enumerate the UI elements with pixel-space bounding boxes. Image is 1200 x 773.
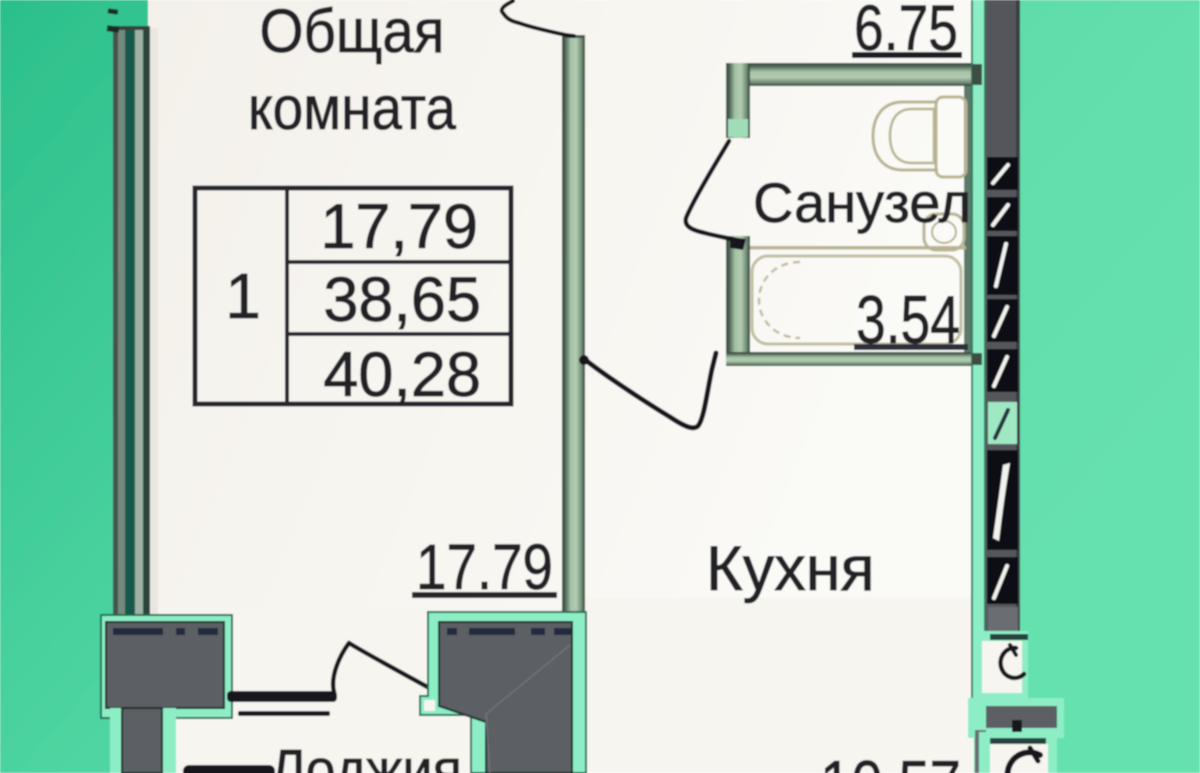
svg-text:комната: комната	[248, 74, 456, 142]
svg-text:Санузел: Санузел	[753, 171, 971, 234]
svg-text:40,28: 40,28	[323, 340, 481, 410]
svg-text:38,65: 38,65	[323, 265, 481, 335]
svg-text:Кухня: Кухня	[706, 534, 875, 604]
svg-text:1: 1	[225, 260, 261, 332]
svg-text:10.57: 10.57	[820, 747, 961, 773]
svg-text:17,79: 17,79	[320, 192, 478, 262]
svg-text:Общая: Общая	[260, 0, 445, 65]
svg-text:Лоджия: Лоджия	[270, 738, 462, 773]
